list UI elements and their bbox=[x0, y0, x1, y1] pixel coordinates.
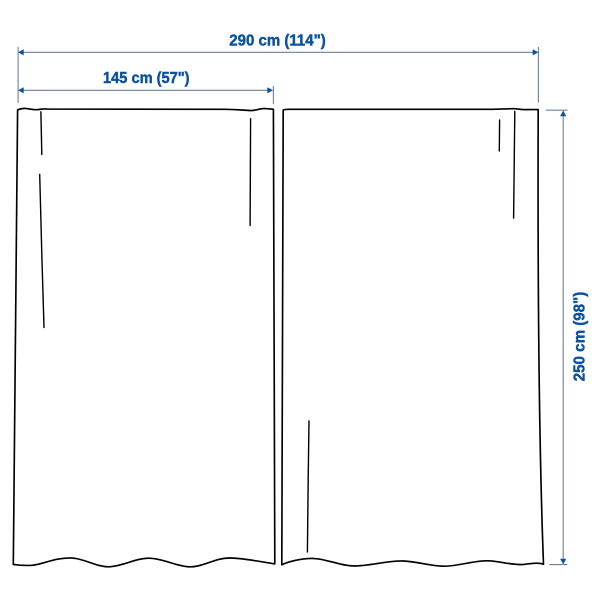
svg-text:145 cm (57"): 145 cm (57") bbox=[103, 70, 190, 87]
svg-text:290 cm (114"): 290 cm (114") bbox=[229, 33, 326, 50]
svg-text:250 cm (98"): 250 cm (98") bbox=[572, 292, 589, 382]
